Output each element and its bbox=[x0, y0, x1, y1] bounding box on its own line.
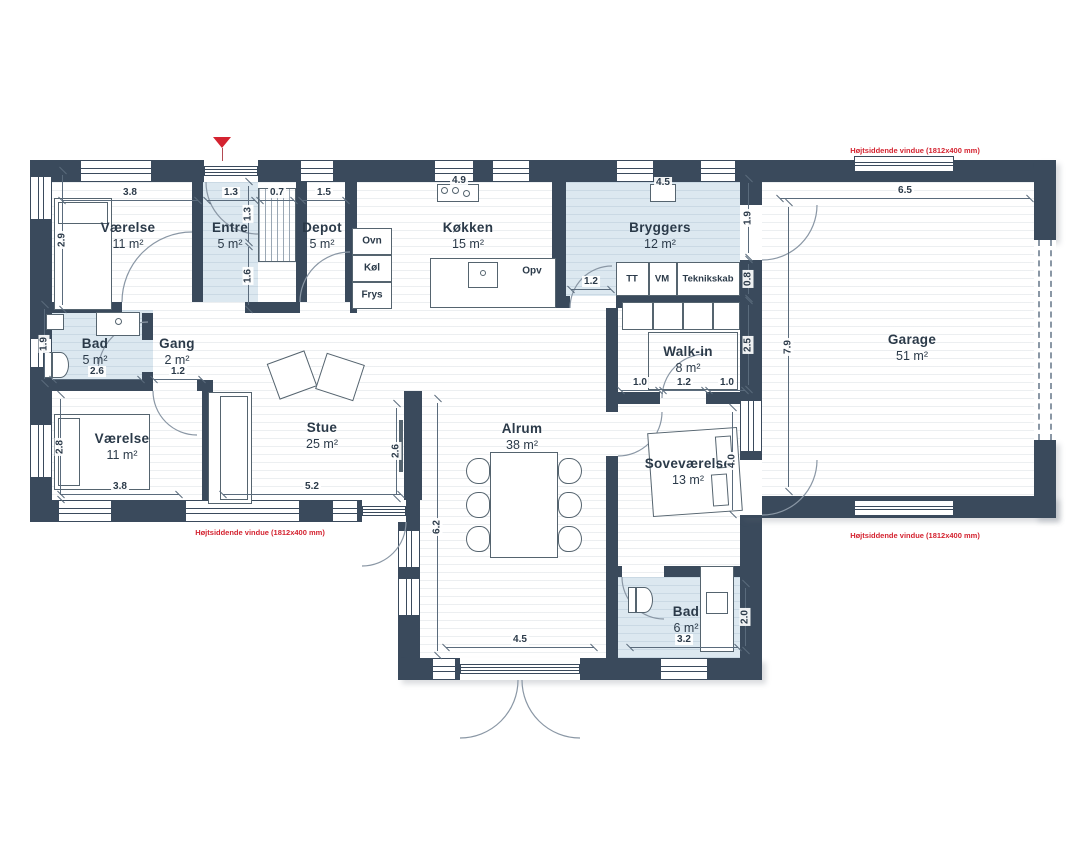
high-window-note-bottom-left: Højtsiddende vindue (1812x400 mm) bbox=[195, 528, 325, 537]
sink-bad5 bbox=[46, 314, 64, 330]
entrance-door-slab bbox=[204, 166, 258, 176]
room-label-vaerelse2: Værelse11 m² bbox=[95, 431, 150, 464]
wall-bad5-vaerelse2 bbox=[42, 380, 153, 391]
wall-sov-bad6-left bbox=[606, 566, 622, 577]
wall-depot-bottom-left bbox=[245, 302, 300, 313]
cooktop-burner bbox=[441, 187, 448, 194]
window-alrum-bottom-left bbox=[432, 658, 456, 680]
wall-stue-alrum-tv bbox=[404, 391, 422, 500]
room-label-koekken: Køkken15 m² bbox=[443, 220, 494, 253]
walkin-shelf-divider bbox=[682, 302, 684, 330]
room-label-walkin: Walk-in8 m² bbox=[663, 344, 713, 377]
entrance-marker-line bbox=[222, 148, 223, 161]
dining-chair bbox=[558, 526, 582, 552]
window-bad6-bottom bbox=[660, 658, 708, 680]
bryggers-garage-door-arc bbox=[762, 205, 817, 260]
window-vaerelse1-top bbox=[80, 160, 152, 182]
high-window-note-bottom-right: Højtsiddende vindue (1812x400 mm) bbox=[850, 531, 980, 540]
alrum-door-left-arc bbox=[460, 680, 518, 738]
room-label-alrum: Alrum38 m² bbox=[502, 421, 543, 454]
wall-corridor-middle bbox=[606, 456, 618, 566]
floor-plan: Værelse11 m² Entre5 m² Depot5 m² Køkken1… bbox=[0, 0, 1080, 848]
alrum-double-door-slabs bbox=[460, 664, 580, 674]
cooktop-burner bbox=[452, 187, 459, 194]
walkin-shelf-divider bbox=[652, 302, 654, 330]
window-stue-bottom-small bbox=[332, 500, 358, 522]
garage-high-window-bottom bbox=[854, 500, 954, 516]
dining-table bbox=[490, 452, 558, 558]
room-label-entre: Entre5 m² bbox=[212, 220, 248, 253]
toilet-bad5-bowl bbox=[52, 352, 69, 378]
room-label-vaerelse1: Værelse11 m² bbox=[101, 220, 156, 253]
window-alrum-left-2 bbox=[398, 578, 420, 616]
label-teknikskab: Teknikskab bbox=[682, 274, 733, 285]
room-label-gang: Gang2 m² bbox=[159, 336, 195, 369]
room-label-depot: Depot5 m² bbox=[302, 220, 342, 253]
teknikskab-divider bbox=[676, 262, 678, 296]
stue-terrace-door-arc bbox=[362, 522, 406, 566]
window-kitchen-top-2 bbox=[492, 160, 530, 182]
label-ovn: Ovn bbox=[362, 236, 381, 247]
shower-drain bbox=[115, 318, 122, 325]
label-vm: VM bbox=[655, 274, 669, 285]
dining-chair bbox=[466, 458, 490, 484]
wall-corridor-upper bbox=[606, 308, 618, 412]
high-window-note-top-right: Højtsiddende vindue (1812x400 mm) bbox=[850, 146, 980, 155]
room-label-stue: Stue25 m² bbox=[306, 420, 338, 453]
window-vaerelse1-left bbox=[30, 176, 52, 220]
garage-wall-right-bottom bbox=[1034, 440, 1056, 518]
room-label-garage: Garage51 m² bbox=[888, 332, 936, 365]
sov-terrace-door-arc bbox=[762, 460, 817, 515]
island-faucet bbox=[480, 270, 486, 276]
wall-corridor-lower bbox=[606, 577, 618, 658]
window-sovevaerelse-right bbox=[740, 400, 762, 452]
toilet-bad5-tank bbox=[44, 352, 52, 378]
vaerelse2-door-arc bbox=[153, 391, 197, 435]
window-depot-top bbox=[300, 160, 334, 182]
room-label-bad5: Bad5 m² bbox=[82, 336, 108, 369]
dining-chair bbox=[558, 458, 582, 484]
toilet-bad6-tank bbox=[628, 587, 636, 613]
window-bryggers-top-1 bbox=[616, 160, 654, 182]
room-label-bad6: Bad6 m² bbox=[673, 604, 699, 637]
dining-chair bbox=[466, 526, 490, 552]
depot-door-arc bbox=[300, 252, 350, 302]
room-label-sovevaerelse: Soveværelse13 m² bbox=[645, 456, 732, 489]
window-vaerelse2-left bbox=[30, 424, 52, 478]
walkin-shelf-top bbox=[622, 302, 740, 330]
label-tt: TT bbox=[626, 274, 638, 285]
walkin-shelf-divider bbox=[712, 302, 714, 330]
garage-door-dashed-line bbox=[1050, 240, 1052, 440]
garage-door-dashed-line bbox=[1038, 240, 1040, 440]
bryggers-door-arc bbox=[570, 266, 612, 308]
entrance-marker-triangle bbox=[213, 137, 231, 148]
dining-chair bbox=[558, 492, 582, 518]
teknikskab-divider bbox=[648, 262, 650, 296]
label-frys: Frys bbox=[361, 290, 382, 301]
toilet-bad6-bowl bbox=[636, 587, 653, 613]
label-koel: Køl bbox=[364, 263, 380, 274]
alrum-door-right-arc bbox=[522, 680, 580, 738]
dining-chair bbox=[466, 492, 490, 518]
garage-high-window-top bbox=[854, 156, 954, 172]
sofa-cushion-line bbox=[220, 396, 248, 500]
vanity-bad6-sink bbox=[706, 592, 728, 614]
cooktop-burner bbox=[463, 190, 470, 197]
sov-terrace-door-opening bbox=[740, 460, 762, 515]
garage-wall-right-top bbox=[1034, 160, 1056, 240]
room-label-bryggers: Bryggers12 m² bbox=[629, 220, 691, 253]
label-opv: Opv bbox=[522, 266, 541, 277]
window-vaerelse2-bottom bbox=[58, 500, 112, 522]
window-bryggers-top-2 bbox=[700, 160, 736, 182]
stue-terrace-door-slab bbox=[362, 506, 406, 516]
